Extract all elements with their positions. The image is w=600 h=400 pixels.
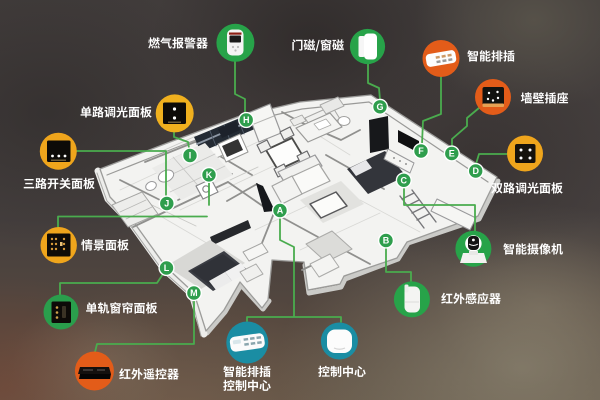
svg-text:L: L: [164, 263, 170, 273]
svg-text:J: J: [164, 199, 169, 209]
svg-text:A: A: [277, 206, 284, 216]
svg-text:G: G: [376, 102, 383, 112]
svg-text:C: C: [401, 176, 408, 186]
svg-text:D: D: [472, 166, 479, 176]
svg-text:H: H: [243, 115, 250, 125]
svg-text:K: K: [206, 170, 213, 180]
svg-text:I: I: [189, 151, 192, 161]
svg-text:F: F: [418, 146, 424, 156]
svg-text:B: B: [383, 236, 390, 246]
svg-text:M: M: [190, 288, 198, 298]
svg-text:E: E: [449, 149, 455, 159]
